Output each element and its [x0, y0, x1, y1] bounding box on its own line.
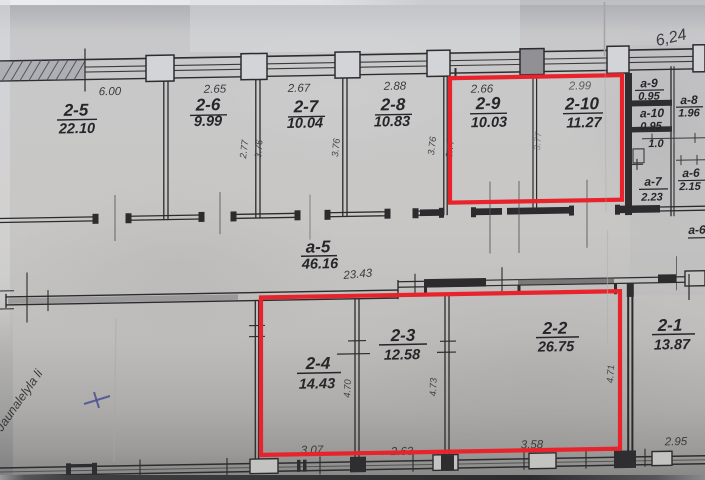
- svg-text:2.23: 2.23: [640, 191, 662, 203]
- svg-text:2-1: 2-1: [657, 316, 683, 335]
- svg-text:46.16: 46.16: [301, 256, 339, 273]
- svg-text:2.99: 2.99: [568, 80, 592, 92]
- svg-text:a-8: a-8: [680, 93, 698, 107]
- svg-text:2-4: 2-4: [305, 354, 331, 373]
- svg-text:1.0: 1.0: [648, 138, 664, 150]
- svg-text:a-6: a-6: [682, 166, 700, 180]
- svg-text:2-6: 2-6: [195, 95, 221, 114]
- svg-text:22.10: 22.10: [58, 121, 95, 138]
- svg-text:10.04: 10.04: [287, 115, 323, 132]
- svg-text:0.95: 0.95: [638, 90, 660, 102]
- svg-text:a-5: a-5: [306, 237, 331, 256]
- svg-text:0.95: 0.95: [640, 120, 662, 132]
- svg-text:10.03: 10.03: [471, 115, 507, 132]
- svg-text:12.58: 12.58: [384, 347, 421, 364]
- svg-text:9.99: 9.99: [194, 114, 222, 130]
- svg-text:a-10: a-10: [640, 106, 664, 120]
- svg-text:2-7: 2-7: [293, 97, 320, 116]
- svg-text:13.87: 13.87: [654, 337, 691, 354]
- svg-text:3.76: 3.76: [426, 135, 439, 155]
- svg-text:a-9: a-9: [640, 76, 658, 90]
- svg-text:3.76: 3.76: [253, 139, 266, 159]
- svg-text:2-5: 2-5: [63, 100, 89, 119]
- svg-text:3.76: 3.76: [330, 137, 343, 157]
- svg-text:14.43: 14.43: [299, 376, 335, 393]
- svg-text:4.71: 4.71: [605, 364, 617, 383]
- svg-text:2.15: 2.15: [678, 181, 701, 193]
- svg-text:4.73: 4.73: [428, 377, 440, 396]
- svg-text:2.95: 2.95: [664, 436, 688, 448]
- svg-text:2.67: 2.67: [287, 83, 311, 95]
- svg-text:a-7: a-7: [644, 174, 663, 188]
- svg-text:6.00: 6.00: [99, 86, 122, 98]
- svg-text:2-3: 2-3: [390, 326, 416, 345]
- svg-text:26.75: 26.75: [537, 339, 575, 356]
- svg-text:2.88: 2.88: [383, 81, 407, 93]
- svg-text:2-9: 2-9: [475, 94, 501, 113]
- svg-text:2-8: 2-8: [380, 95, 406, 114]
- svg-text:3.77: 3.77: [532, 131, 545, 151]
- svg-text:2-2: 2-2: [542, 319, 568, 338]
- svg-text:11.27: 11.27: [566, 115, 602, 132]
- svg-text:2-10: 2-10: [564, 94, 600, 114]
- svg-text:1.96: 1.96: [678, 107, 700, 119]
- svg-text:2.65: 2.65: [203, 84, 227, 96]
- svg-text:4.70: 4.70: [342, 378, 354, 398]
- svg-text:10.83: 10.83: [374, 114, 410, 131]
- svg-text:a-6: a-6: [688, 223, 705, 237]
